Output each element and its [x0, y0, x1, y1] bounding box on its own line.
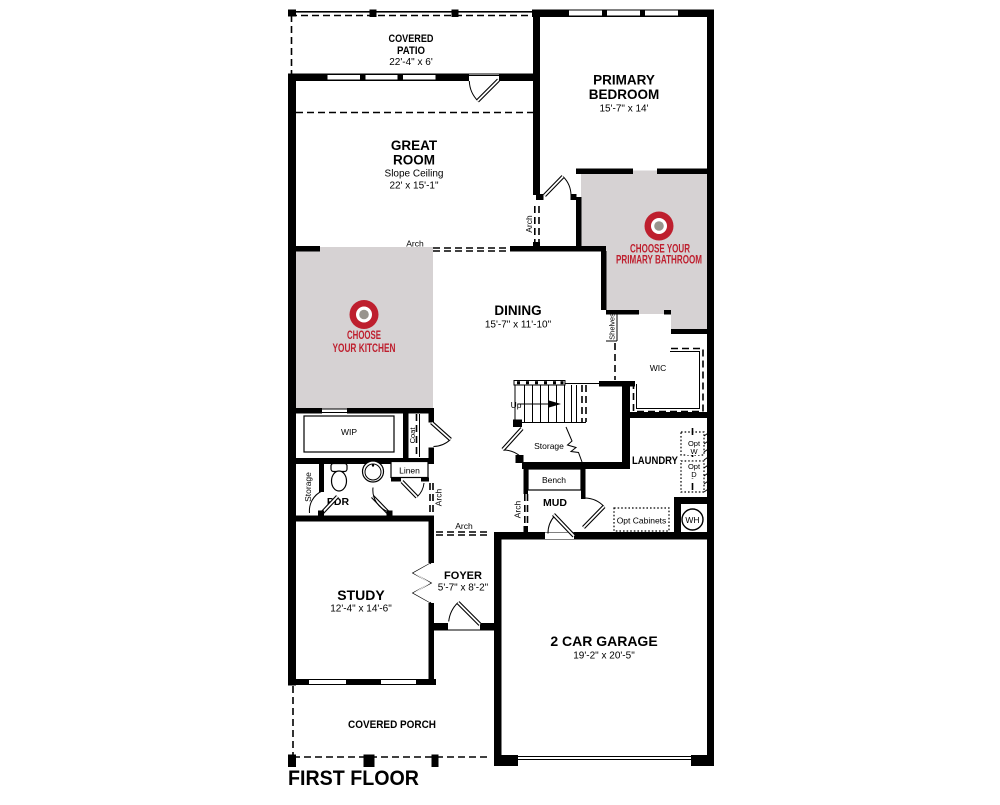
svg-text:PRIMARY: PRIMARY	[593, 73, 655, 88]
svg-text:STUDY: STUDY	[337, 587, 385, 603]
svg-text:BEDROOM: BEDROOM	[589, 87, 660, 102]
svg-text:WIP: WIP	[341, 427, 357, 437]
svg-text:19'-2" x 20'-5": 19'-2" x 20'-5"	[573, 651, 635, 662]
svg-text:COVERED: COVERED	[389, 33, 434, 45]
svg-text:Arch: Arch	[513, 500, 523, 518]
svg-text:Shelves: Shelves	[608, 313, 617, 340]
svg-text:DINING: DINING	[494, 303, 541, 318]
svg-text:Bench: Bench	[542, 475, 566, 485]
svg-text:FIRST FLOOR: FIRST FLOOR	[288, 766, 419, 790]
svg-text:Storage: Storage	[534, 441, 564, 451]
svg-text:Opt Cabinets: Opt Cabinets	[617, 516, 667, 526]
svg-text:YOUR KITCHEN: YOUR KITCHEN	[333, 341, 396, 355]
svg-text:PRIMARY BATHROOM: PRIMARY BATHROOM	[616, 253, 702, 267]
svg-text:12'-4" x 14'-6": 12'-4" x 14'-6"	[330, 604, 392, 615]
svg-text:2 CAR GARAGE: 2 CAR GARAGE	[550, 633, 657, 649]
svg-text:Coat: Coat	[408, 427, 417, 444]
svg-text:COVERED PORCH: COVERED PORCH	[348, 719, 436, 731]
svg-text:5'-7" x 8'-2": 5'-7" x 8'-2"	[438, 583, 489, 594]
svg-text:W: W	[690, 447, 698, 456]
svg-text:Arch: Arch	[434, 488, 444, 506]
svg-text:15'-7" x 11'-10": 15'-7" x 11'-10"	[485, 320, 552, 331]
svg-text:MUD: MUD	[543, 497, 567, 509]
svg-text:D: D	[691, 470, 697, 479]
svg-text:Storage: Storage	[303, 472, 313, 502]
svg-text:FOYER: FOYER	[444, 570, 482, 582]
svg-text:22'-4" x 6': 22'-4" x 6'	[389, 57, 433, 68]
svg-text:WH: WH	[685, 515, 699, 525]
svg-text:PATIO: PATIO	[397, 45, 425, 57]
svg-text:LAUNDRY: LAUNDRY	[632, 455, 679, 467]
svg-text:22' x 15'-1": 22' x 15'-1"	[389, 181, 439, 192]
svg-text:CHOOSE: CHOOSE	[347, 328, 381, 342]
svg-text:Arch: Arch	[524, 215, 534, 233]
svg-text:Arch: Arch	[406, 239, 424, 249]
svg-text:GREAT: GREAT	[391, 138, 438, 153]
svg-text:Linen: Linen	[399, 466, 420, 476]
svg-text:Arch: Arch	[455, 521, 473, 531]
svg-text:ROOM: ROOM	[393, 153, 435, 168]
svg-text:Up: Up	[511, 400, 522, 410]
svg-text:WIC: WIC	[650, 363, 667, 373]
svg-text:Slope Ceiling: Slope Ceiling	[385, 169, 444, 180]
svg-text:15'-7" x 14': 15'-7" x 14'	[599, 104, 648, 115]
